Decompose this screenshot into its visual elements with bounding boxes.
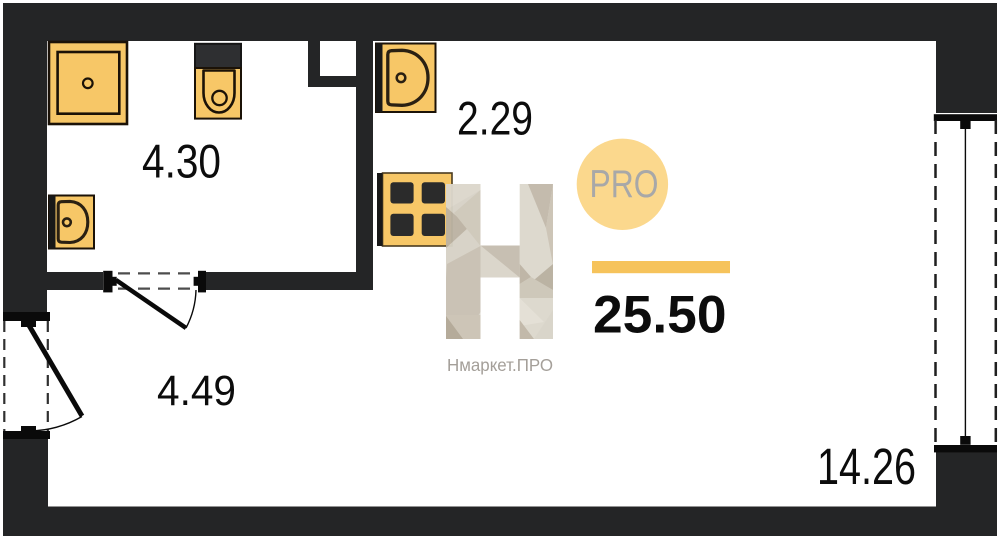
svg-text:4.30: 4.30 <box>142 134 221 187</box>
svg-text:25.50: 25.50 <box>593 286 727 345</box>
svg-text:2.29: 2.29 <box>457 92 533 145</box>
svg-text:14.26: 14.26 <box>817 438 916 495</box>
svg-text:PRO: PRO <box>590 163 659 206</box>
svg-text:Нмаркет.ПРО: Нмаркет.ПРО <box>447 356 553 375</box>
svg-text:4.49: 4.49 <box>157 367 236 415</box>
